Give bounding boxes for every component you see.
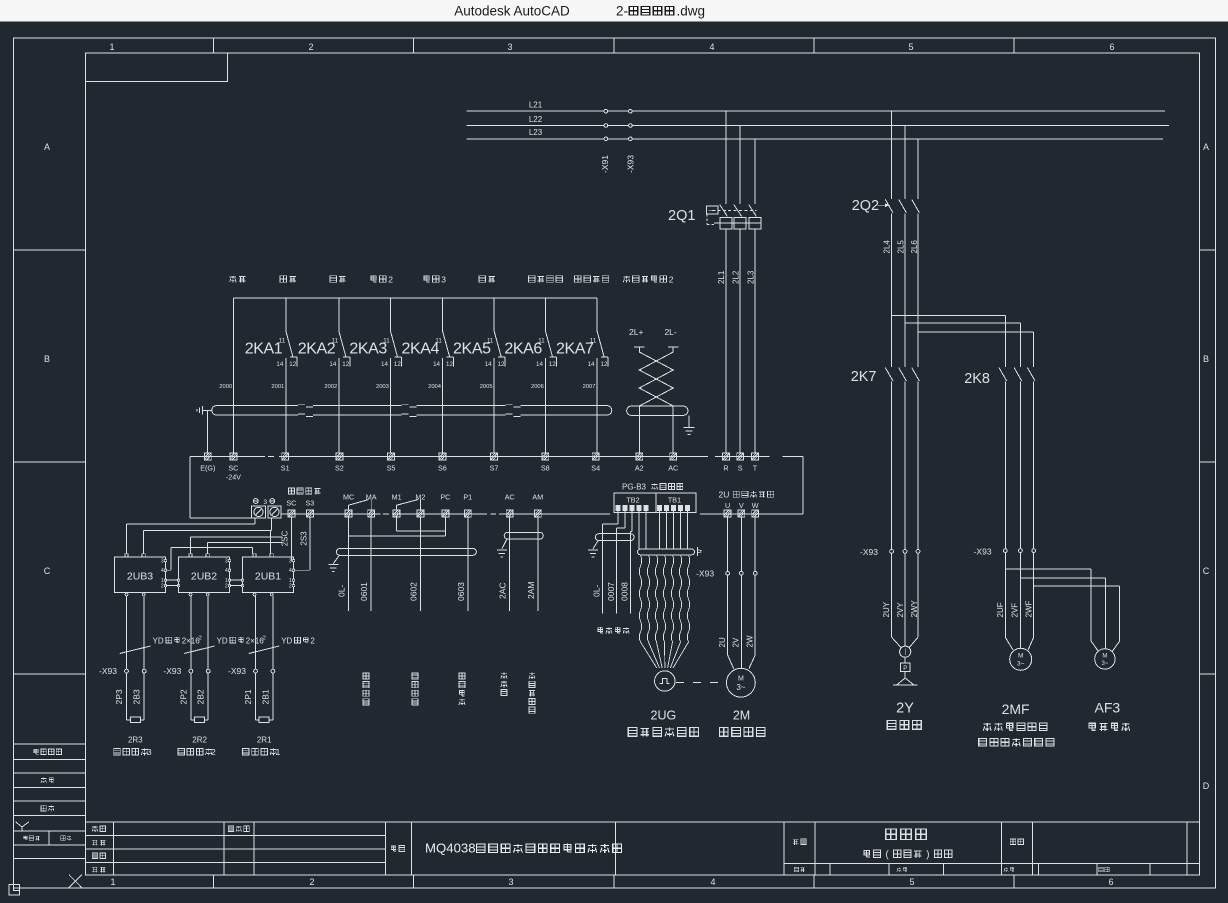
svg-text:3~: 3~ (736, 683, 745, 692)
svg-text:-X93: -X93 (625, 155, 635, 173)
svg-text:2UG: 2UG (651, 709, 677, 723)
svg-text:2L1: 2L1 (717, 270, 726, 284)
svg-text:14: 14 (433, 361, 440, 368)
svg-text:P1: P1 (463, 492, 472, 501)
svg-text:2: 2 (225, 584, 228, 590)
svg-text:2Q1: 2Q1 (668, 208, 695, 224)
svg-text:2: 2 (263, 635, 266, 641)
svg-text:3: 3 (161, 559, 164, 565)
svg-text:2R2: 2R2 (192, 736, 207, 745)
svg-text:2V: 2V (732, 637, 741, 647)
svg-text:AM: AM (532, 492, 543, 501)
svg-text:3: 3 (441, 274, 446, 284)
svg-text:12: 12 (601, 361, 608, 368)
svg-text:A: A (1203, 142, 1209, 152)
svg-text:-X93: -X93 (228, 666, 246, 676)
svg-text:M: M (738, 676, 744, 683)
svg-text:2UB2: 2UB2 (191, 571, 217, 583)
svg-text:2Q2: 2Q2 (852, 198, 879, 214)
svg-text:2KA7: 2KA7 (556, 341, 594, 358)
svg-text:MQ4038: MQ4038 (425, 841, 476, 856)
svg-text:2W: 2W (745, 635, 754, 647)
svg-text:-X93: -X93 (974, 547, 992, 557)
svg-text:0007: 0007 (606, 582, 616, 601)
svg-text:2: 2 (388, 274, 393, 284)
svg-text:2L6: 2L6 (910, 240, 919, 254)
svg-text:P: P (903, 666, 907, 672)
svg-text:11: 11 (332, 338, 339, 345)
svg-text:S3: S3 (306, 499, 315, 508)
svg-text:0603: 0603 (456, 582, 466, 601)
svg-text:2UY: 2UY (882, 601, 891, 617)
svg-text:3: 3 (507, 42, 512, 52)
svg-text:2003: 2003 (376, 384, 389, 390)
svg-text:6: 6 (1108, 877, 1113, 887)
svg-text:12: 12 (549, 361, 556, 368)
svg-text:1: 1 (110, 877, 115, 887)
svg-text:W: W (752, 501, 759, 510)
svg-text:11: 11 (435, 338, 442, 345)
svg-text:2SC: 2SC (281, 530, 290, 546)
svg-text:-24V: -24V (226, 473, 241, 482)
svg-text:2: 2 (289, 584, 292, 590)
svg-text:3: 3 (264, 499, 268, 506)
svg-text:2MF: 2MF (1002, 701, 1030, 717)
svg-text:2001: 2001 (271, 384, 284, 390)
svg-text:0008: 0008 (620, 582, 630, 601)
svg-text:L22: L22 (529, 115, 543, 124)
svg-text:2WF: 2WF (1024, 601, 1033, 618)
svg-text:2UB3: 2UB3 (127, 571, 153, 583)
svg-text:B: B (1203, 354, 1209, 364)
svg-text:2L-: 2L- (664, 327, 676, 337)
svg-text:L23: L23 (529, 128, 543, 137)
svg-text:3: 3 (289, 559, 292, 565)
svg-text:12: 12 (498, 361, 505, 368)
svg-text:M: M (1102, 653, 1107, 659)
svg-text:S: S (738, 464, 743, 473)
svg-text:Autodesk AutoCAD: Autodesk AutoCAD (454, 4, 570, 19)
svg-text:12: 12 (342, 361, 349, 368)
svg-text:2UF: 2UF (996, 602, 1005, 617)
svg-text:AC: AC (505, 492, 515, 501)
svg-text:12: 12 (446, 361, 453, 368)
svg-text:TB2: TB2 (626, 495, 639, 504)
svg-text:2AM: 2AM (526, 582, 536, 599)
svg-text:1: 1 (276, 747, 281, 757)
svg-text:14: 14 (536, 361, 543, 368)
svg-text:14: 14 (276, 361, 283, 368)
svg-text:2L4: 2L4 (882, 240, 891, 254)
svg-text:S8: S8 (541, 464, 550, 473)
svg-text:14: 14 (485, 361, 492, 368)
svg-text:A2: A2 (635, 464, 644, 473)
svg-text:T: T (753, 464, 758, 473)
svg-text:2KA6: 2KA6 (504, 341, 542, 358)
svg-text:2: 2 (308, 42, 313, 52)
svg-text:0L-: 0L- (337, 585, 347, 597)
svg-text:A: A (44, 142, 50, 152)
svg-text:4: 4 (710, 877, 715, 887)
svg-text:2007: 2007 (583, 384, 596, 390)
svg-text:11: 11 (487, 338, 494, 345)
svg-text:2S3: 2S3 (300, 531, 309, 546)
svg-text:2UB1: 2UB1 (255, 571, 281, 583)
svg-text:): ) (926, 850, 929, 861)
svg-text:2R3: 2R3 (128, 736, 143, 745)
svg-text:2B1: 2B1 (260, 689, 270, 704)
svg-text:YD: YD (281, 636, 292, 645)
svg-text:-X91: -X91 (600, 155, 610, 173)
svg-text:6: 6 (1109, 42, 1114, 52)
svg-text:2B3: 2B3 (132, 689, 142, 704)
svg-text:4: 4 (289, 568, 292, 574)
svg-text:SC: SC (228, 464, 238, 473)
svg-text:B: B (44, 354, 50, 364)
svg-text:R: R (723, 464, 728, 473)
svg-text:2L2: 2L2 (732, 270, 741, 284)
svg-text:12: 12 (289, 361, 296, 368)
svg-text:SC: SC (286, 499, 296, 508)
svg-text:2Y: 2Y (896, 701, 914, 717)
svg-text:2WY: 2WY (910, 600, 919, 618)
svg-text:V: V (739, 501, 744, 510)
svg-text:YD: YD (153, 636, 164, 645)
svg-text:S2: S2 (335, 464, 344, 473)
svg-text:PG-B3: PG-B3 (622, 483, 647, 492)
svg-text:TB1: TB1 (668, 495, 681, 504)
svg-text:0602: 0602 (408, 582, 418, 601)
svg-text:4: 4 (709, 42, 714, 52)
svg-text:2KA1: 2KA1 (245, 341, 283, 358)
svg-text:M: M (1018, 653, 1023, 660)
svg-text:2K8: 2K8 (964, 371, 990, 387)
svg-text:-X93: -X93 (696, 569, 714, 579)
svg-text:AC: AC (668, 464, 678, 473)
svg-text:2P1: 2P1 (243, 689, 253, 704)
svg-text:2U: 2U (719, 489, 730, 499)
svg-text:14: 14 (381, 361, 388, 368)
svg-text:2×16: 2×16 (246, 636, 265, 645)
svg-text:3: 3 (225, 559, 228, 565)
svg-text:2: 2 (199, 635, 202, 641)
svg-text:2-: 2- (616, 4, 628, 19)
svg-text:2B2: 2B2 (196, 689, 206, 704)
svg-text:0L-: 0L- (592, 585, 602, 597)
svg-text:2R1: 2R1 (257, 736, 272, 745)
svg-text:0601: 0601 (359, 582, 369, 601)
svg-text:11: 11 (279, 338, 286, 345)
svg-text:11: 11 (590, 338, 597, 345)
svg-text:S6: S6 (438, 464, 447, 473)
svg-text:U: U (725, 501, 730, 510)
svg-text:2L3: 2L3 (746, 270, 755, 284)
svg-text:2P3: 2P3 (114, 689, 124, 704)
svg-text:3: 3 (508, 877, 513, 887)
svg-text:M1: M1 (392, 492, 402, 501)
svg-text:2AC: 2AC (498, 582, 508, 599)
svg-text:2KA5: 2KA5 (453, 341, 491, 358)
svg-text:-X93: -X93 (99, 666, 117, 676)
svg-text:2L5: 2L5 (896, 240, 905, 254)
svg-text:S7: S7 (490, 464, 499, 473)
svg-text:3~: 3~ (1017, 661, 1025, 668)
svg-text:2U: 2U (718, 637, 727, 647)
svg-text:2005: 2005 (480, 384, 493, 390)
svg-text:C: C (1203, 566, 1210, 576)
svg-text:MC: MC (343, 492, 354, 501)
svg-text:2VF: 2VF (1011, 603, 1020, 618)
svg-text:2KA2: 2KA2 (298, 341, 336, 358)
svg-text:2P2: 2P2 (178, 689, 188, 704)
svg-text:2: 2 (309, 877, 314, 887)
svg-text:5: 5 (908, 42, 913, 52)
svg-text:S5: S5 (387, 464, 396, 473)
svg-text:2: 2 (310, 636, 315, 645)
svg-text:3: 3 (147, 747, 152, 757)
svg-text:2K7: 2K7 (851, 369, 877, 385)
svg-text:S4: S4 (591, 464, 600, 473)
svg-text:YD: YD (217, 636, 228, 645)
svg-text:2000: 2000 (219, 384, 232, 390)
svg-text:AF3: AF3 (1095, 700, 1121, 716)
svg-text:2: 2 (161, 584, 164, 590)
svg-text:5: 5 (909, 877, 914, 887)
svg-text:11: 11 (383, 338, 390, 345)
svg-text:11: 11 (538, 338, 545, 345)
svg-text:L21: L21 (529, 101, 543, 110)
svg-text:2004: 2004 (428, 384, 442, 390)
svg-text:14: 14 (329, 361, 336, 368)
svg-text:2VY: 2VY (896, 602, 905, 618)
svg-text:S1: S1 (281, 464, 290, 473)
svg-text:-X93: -X93 (860, 547, 878, 557)
svg-text:2KA3: 2KA3 (349, 341, 387, 358)
svg-text:D: D (1203, 781, 1210, 791)
svg-text:14: 14 (588, 361, 595, 368)
svg-text:4: 4 (161, 568, 164, 574)
svg-text:2KA4: 2KA4 (401, 341, 439, 358)
svg-text:3~: 3~ (1101, 661, 1108, 667)
svg-text:2M: 2M (733, 709, 750, 723)
svg-text:E(G): E(G) (200, 464, 215, 473)
svg-text:2: 2 (669, 274, 674, 284)
svg-text:-X93: -X93 (163, 666, 181, 676)
svg-text:2L+: 2L+ (629, 327, 643, 337)
svg-text:12: 12 (394, 361, 401, 368)
svg-text:PC: PC (440, 492, 450, 501)
svg-text:2006: 2006 (531, 384, 544, 390)
svg-text:C: C (44, 566, 51, 576)
svg-text:1: 1 (109, 42, 114, 52)
svg-text:2: 2 (211, 747, 216, 757)
svg-text:4: 4 (225, 568, 228, 574)
svg-text:2002: 2002 (324, 384, 337, 390)
svg-text:.dwg: .dwg (677, 4, 706, 19)
